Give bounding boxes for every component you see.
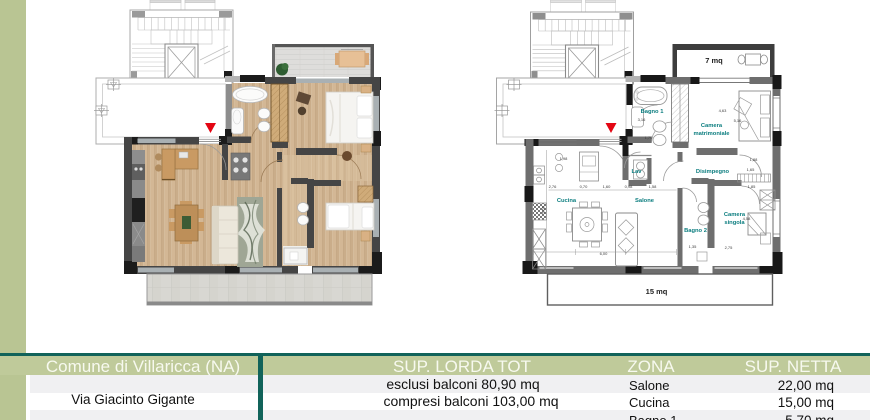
svg-text:0,70: 0,70 [580, 184, 589, 189]
svg-text:2,76: 2,76 [549, 184, 558, 189]
svg-text:Lav: Lav [632, 169, 643, 175]
svg-text:1,88: 1,88 [750, 157, 759, 162]
svg-text:0,98: 0,98 [625, 184, 634, 189]
svg-text:1,60: 1,60 [603, 184, 612, 189]
svg-text:15 mq: 15 mq [646, 287, 668, 296]
svg-text:Salone: Salone [635, 198, 655, 204]
svg-text:5,66: 5,66 [541, 205, 546, 214]
svg-text:1,85: 1,85 [748, 184, 757, 189]
svg-text:5,16: 5,16 [734, 118, 743, 123]
svg-text:Cucina: Cucina [557, 198, 577, 204]
svg-text:Camera: Camera [701, 123, 723, 129]
svg-text:1,98: 1,98 [560, 156, 569, 161]
svg-text:1,58: 1,58 [649, 184, 658, 189]
svg-text:1,65: 1,65 [747, 167, 756, 172]
svg-text:Bagno 1: Bagno 1 [641, 109, 665, 115]
svg-text:6,00: 6,00 [600, 251, 609, 256]
svg-text:1,79: 1,79 [645, 135, 654, 140]
svg-text:matrimoniale: matrimoniale [693, 131, 730, 137]
svg-text:4,58: 4,58 [743, 216, 752, 221]
svg-text:1,35: 1,35 [689, 244, 698, 249]
svg-text:Disimpegno: Disimpegno [696, 169, 730, 175]
svg-text:2,75: 2,75 [725, 245, 734, 250]
svg-text:7 mq: 7 mq [705, 56, 723, 65]
svg-text:Bagno 2: Bagno 2 [684, 228, 707, 234]
svg-text:4,63: 4,63 [719, 108, 728, 113]
svg-text:3,16: 3,16 [638, 117, 647, 122]
